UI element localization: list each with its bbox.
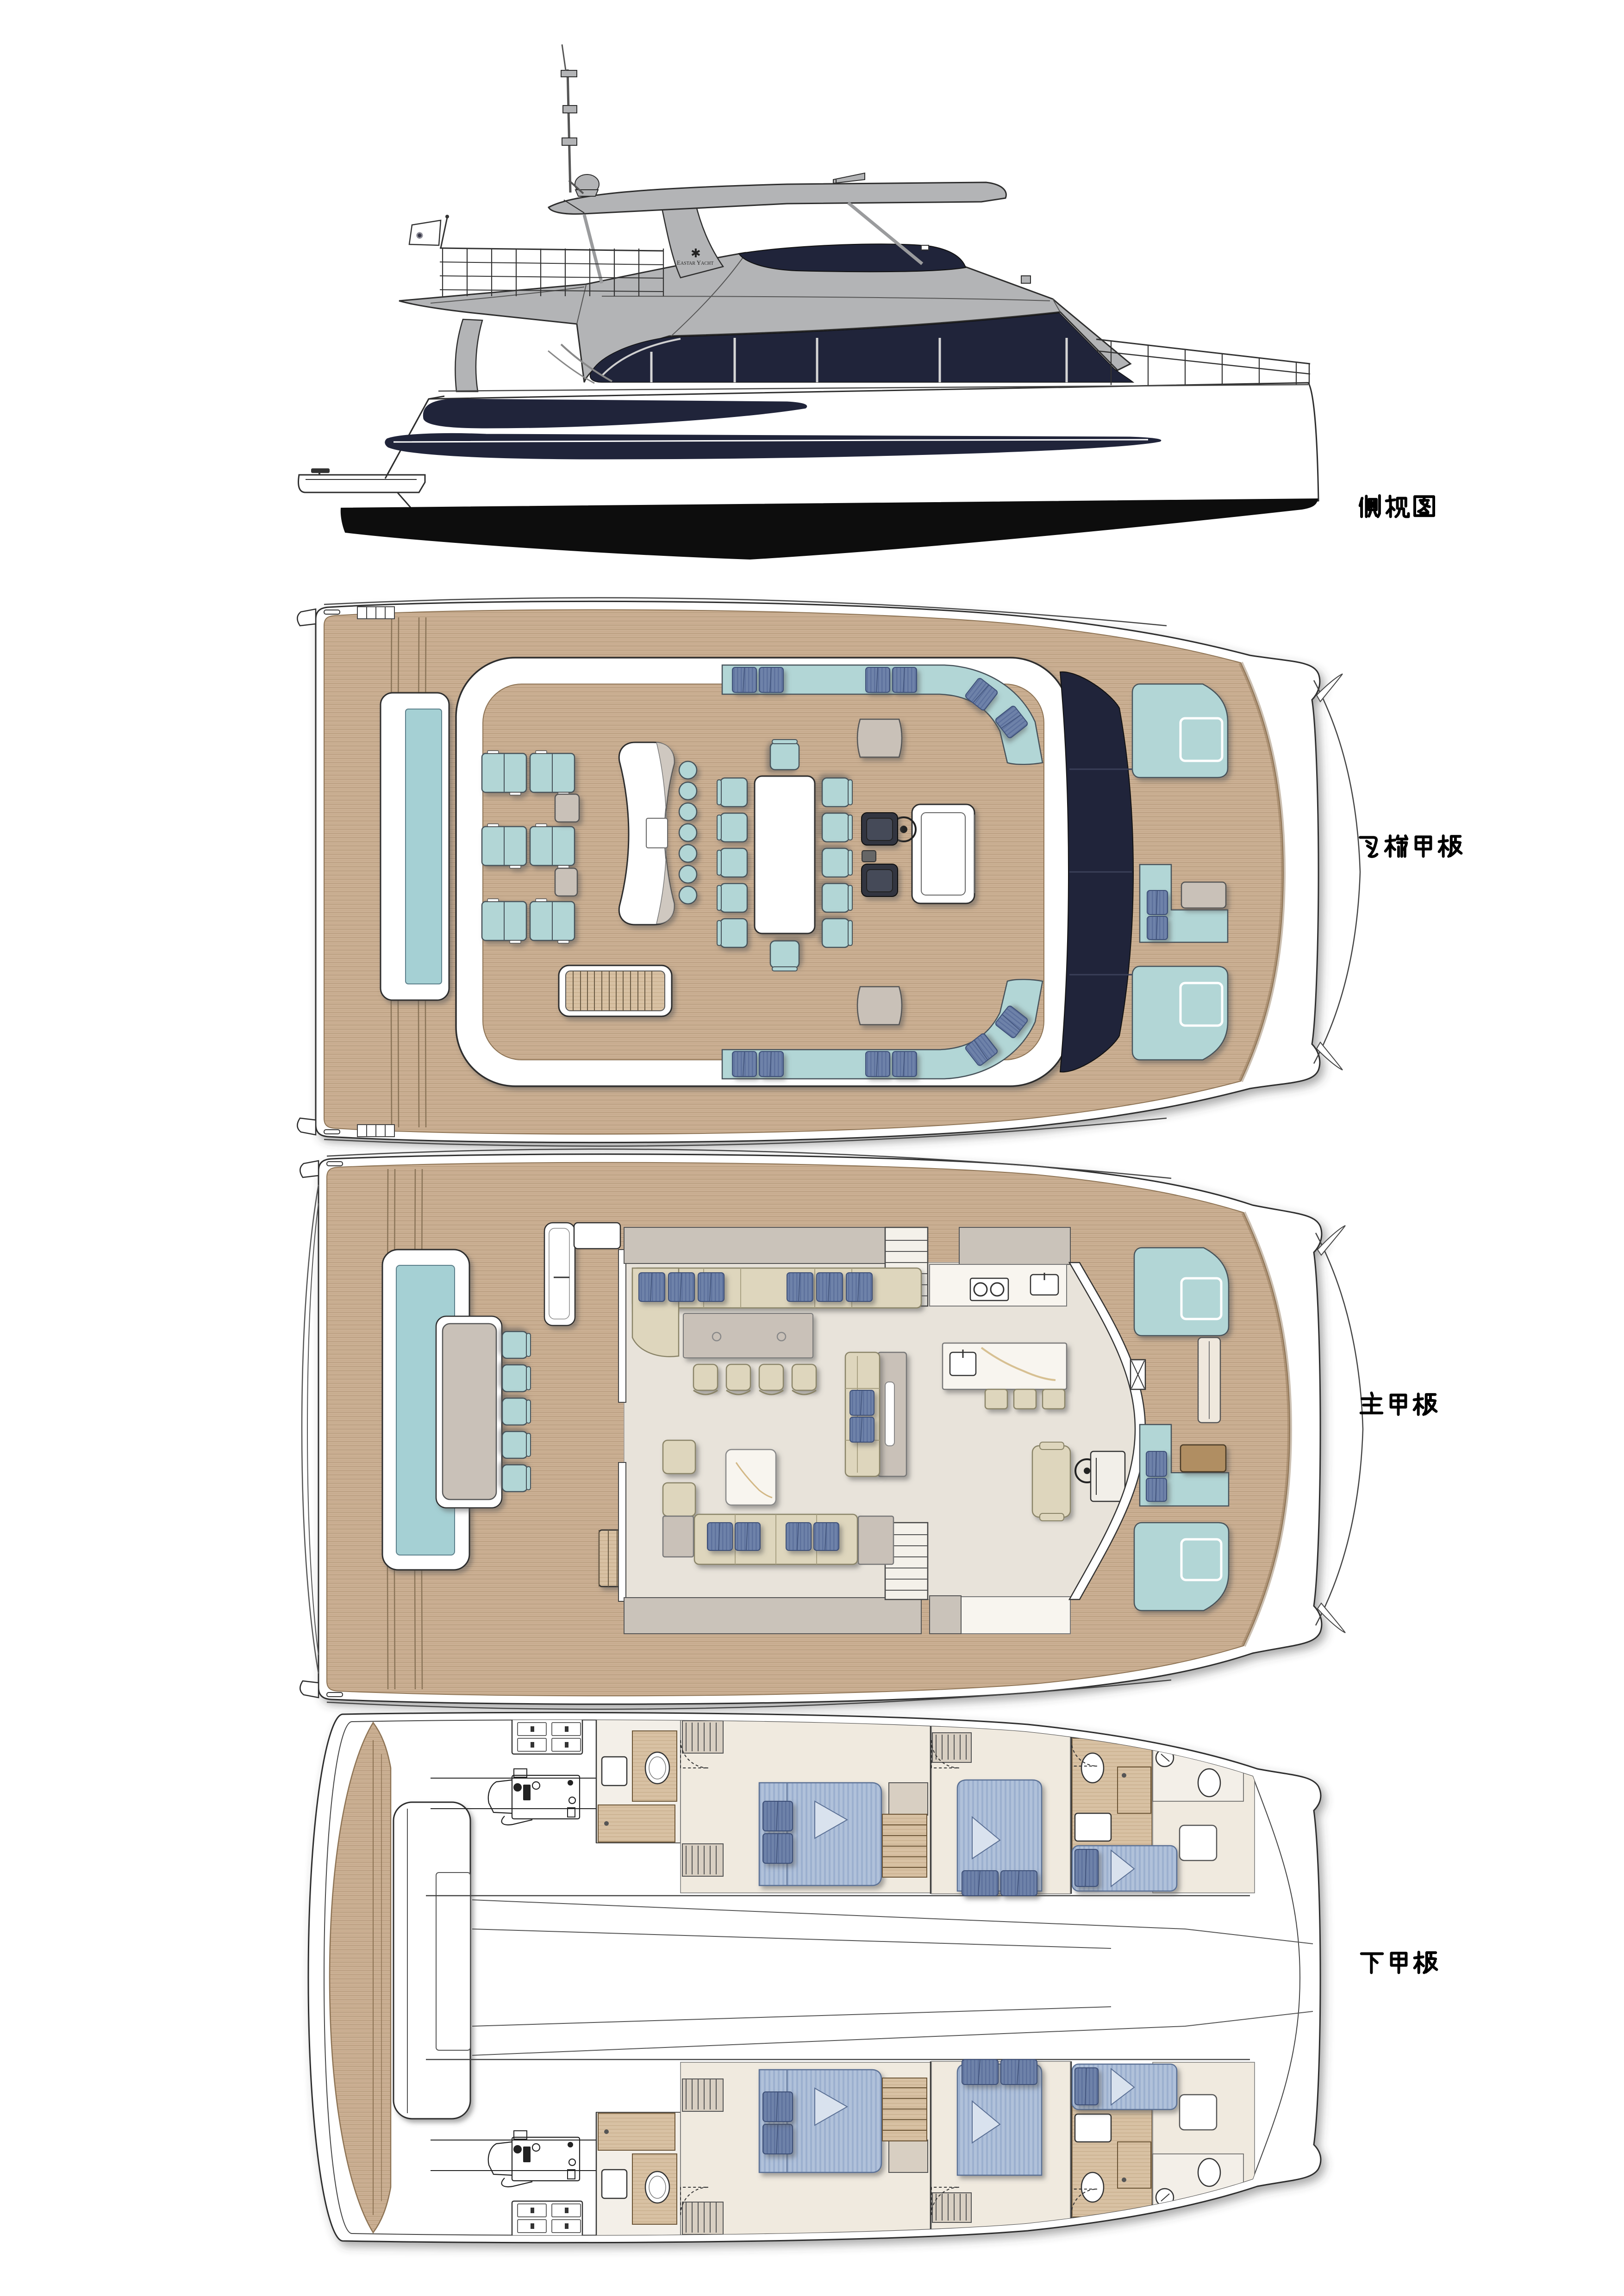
svg-text:✱: ✱ <box>691 246 701 260</box>
svg-text:✺: ✺ <box>416 231 424 241</box>
